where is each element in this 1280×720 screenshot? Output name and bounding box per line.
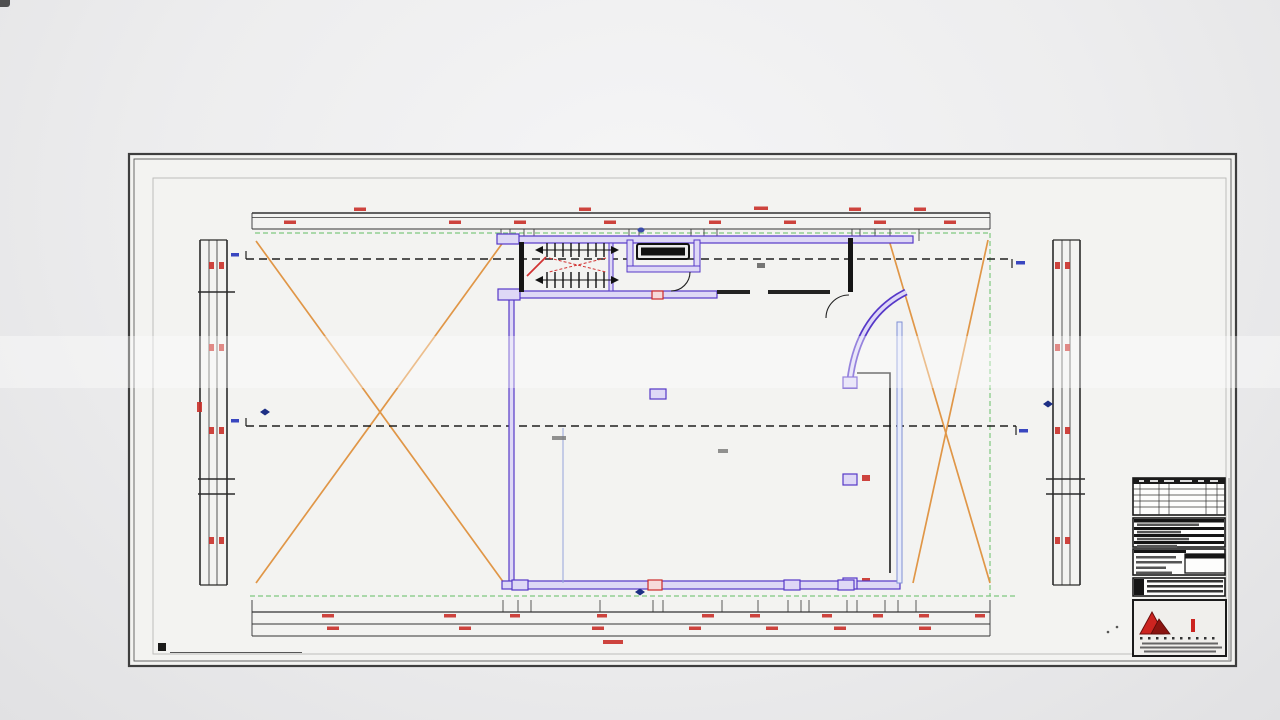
logo-block: [1133, 600, 1226, 656]
floor-plan-sheet: [125, 150, 1240, 670]
project-info: [1133, 518, 1225, 547]
sheet-number-section: [1133, 549, 1225, 575]
logo-address-lines: [1140, 643, 1222, 653]
mini-table: [1133, 578, 1225, 596]
logo-divider: [1191, 619, 1195, 632]
titleblock: [1133, 478, 1229, 660]
corner-artifact: [0, 0, 10, 7]
revision-table: [1133, 478, 1225, 515]
screenshot-root: { "title": { "text": "PLANO NIVEL 4 OFIC…: [0, 0, 1280, 720]
